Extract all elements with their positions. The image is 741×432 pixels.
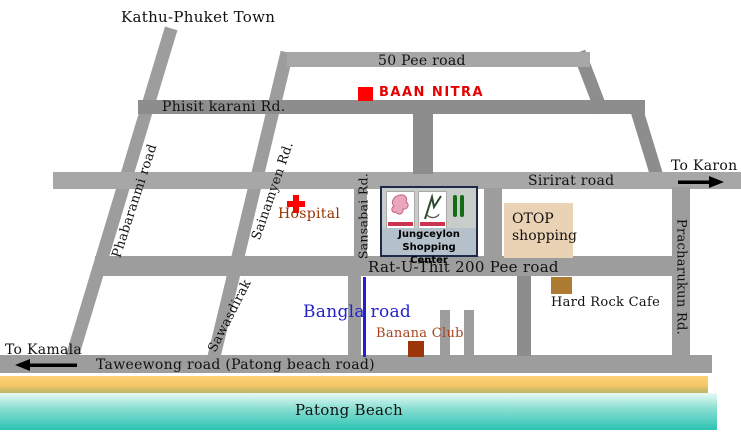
hospital-label: Hospital: [278, 206, 340, 222]
otop-shopping-block: OTOP shopping: [504, 203, 573, 258]
jungceylon-caption: Jungceylon Shopping Center: [382, 228, 476, 255]
hard-rock-cafe-marker: [551, 277, 572, 294]
karon-arrow-icon: [678, 176, 724, 188]
logo-red-strip: [388, 222, 413, 226]
jungceylon-shopping-center: Jungceylon Shopping Center: [380, 186, 478, 257]
sea-strip: Patong Beach: [0, 393, 717, 430]
road-vertical-phisit-sirirat: [413, 112, 433, 174]
patong-beach-label: Patong Beach: [295, 401, 403, 419]
pink-logo-art: [387, 193, 414, 223]
road-vertical-ratuthit-taweewong: [517, 276, 531, 356]
road-label-taweewong: Taweewong road (Patong beach road): [96, 357, 375, 373]
destination-kamala-label: To Kamala: [5, 342, 82, 358]
road-label-50-pee: 50 Pee road: [378, 53, 466, 69]
beach-sand-strip: [0, 376, 708, 393]
destination-karon-label: To Karon: [671, 158, 737, 174]
banana-club-marker: [408, 341, 424, 357]
road-connector-phisit-sirirat: [629, 104, 664, 180]
baan-nitra-marker: [358, 87, 373, 101]
road-phabaranmi: [66, 26, 178, 359]
road-label-phisit-karani: Phisit karani Rd.: [162, 99, 286, 115]
road-vertical-sirirat-ratuthit: [484, 188, 502, 258]
road-label-sansabai: Sansabai Rd.: [356, 173, 371, 259]
otop-label-line1: OTOP: [512, 211, 573, 228]
jungceylon-caption-line1: Jungceylon: [382, 228, 476, 241]
road-sainamyen-sawasdirak: [208, 51, 294, 358]
banana-club-label: Banana Club: [376, 326, 464, 341]
destination-kathu-phuket-label: Kathu-Phuket Town: [121, 8, 275, 26]
knife-icon: [460, 195, 464, 217]
jungceylon-caption-line2: Shopping Center: [382, 241, 476, 267]
road-label-sirirat: Sirirat road: [528, 173, 614, 189]
jungceylon-logo-card-2: [418, 191, 447, 229]
baan-nitra-label: BAAN NITRA: [379, 85, 484, 100]
jungceylon-logo-card-1: [386, 191, 415, 229]
road-label-pracharukun: Pracharukun Rd.: [674, 219, 689, 335]
patong-area-map: Patong Beach Kathu-Phuket Town To Karon …: [0, 0, 741, 432]
road-label-bangla: Bangla road: [303, 302, 411, 322]
road-soi-stub-2: [464, 310, 474, 356]
otop-label-line2: shopping: [512, 228, 573, 245]
kamala-arrow-icon: [15, 359, 77, 371]
green-logo-art: [419, 193, 446, 223]
hard-rock-cafe-label: Hard Rock Cafe: [551, 295, 660, 310]
logo-red-strip: [420, 222, 445, 226]
fork-icon: [453, 195, 457, 217]
